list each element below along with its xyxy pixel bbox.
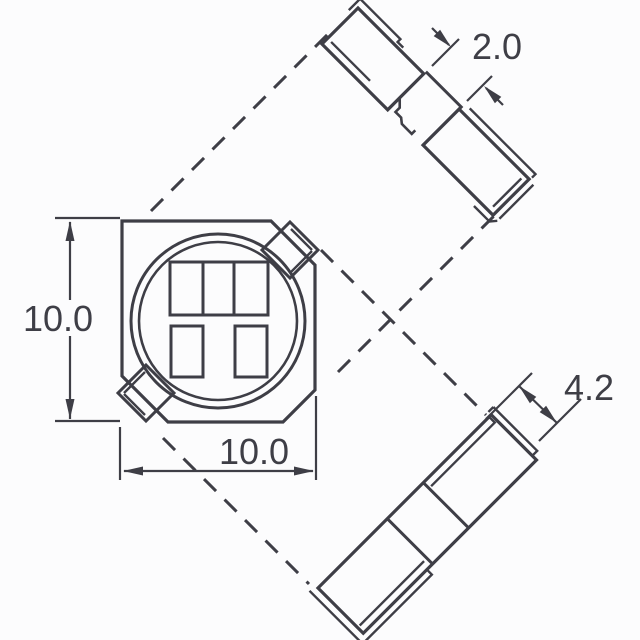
arrowhead-right — [294, 467, 314, 476]
drawing-canvas: 10.0 10.0 2.0 4.2 — [0, 0, 640, 640]
profile-right-block — [423, 109, 529, 215]
main-top-view — [118, 221, 318, 422]
arrowhead-left — [123, 467, 143, 476]
profile-bottom-outer-cap — [358, 570, 432, 640]
projection-line-upper-left — [151, 29, 333, 211]
side-view-lower-right — [310, 407, 547, 640]
profile-left-block — [322, 8, 424, 110]
package-body-outline — [122, 221, 315, 422]
profile-segment-divider — [423, 483, 468, 528]
extension-line — [467, 76, 492, 101]
pad-top-block — [170, 262, 268, 315]
pad-bottom-right — [235, 326, 267, 377]
lens-inner-circle — [139, 242, 297, 400]
dimension-label-left: 10.0 — [23, 298, 93, 339]
projection-line-center-up — [338, 209, 501, 372]
dimension-label-bottom: 10.0 — [219, 431, 289, 472]
profile-segment-divider — [387, 519, 432, 564]
pad-bottom-left — [171, 326, 203, 377]
extension-line — [486, 373, 532, 419]
profile-left-inner-line — [331, 42, 370, 81]
corner-tab-plating-line — [291, 251, 312, 272]
corner-tab-outline — [118, 365, 174, 421]
arrowhead-down — [66, 399, 75, 419]
profile-left-end-cap — [310, 591, 362, 640]
dimension-label-corner-tab: 2.0 — [472, 26, 522, 67]
profile-band-outline — [318, 415, 536, 633]
profile-right-end-cap — [489, 407, 537, 455]
lens-outer-circle — [131, 234, 305, 408]
dimension-left-height: 10.0 — [23, 218, 120, 421]
profile-right-top-cap — [466, 108, 535, 177]
dimension-label-side-terminal: 4.2 — [564, 367, 614, 408]
corner-tab-bottom-left — [118, 365, 174, 421]
profile-top-inner-line — [426, 418, 495, 487]
projection-line-center-right — [321, 250, 486, 415]
package-dimension-drawing: 10.0 10.0 2.0 4.2 — [0, 0, 640, 640]
arrowhead-up — [66, 221, 75, 241]
electrode-pads — [170, 262, 268, 377]
